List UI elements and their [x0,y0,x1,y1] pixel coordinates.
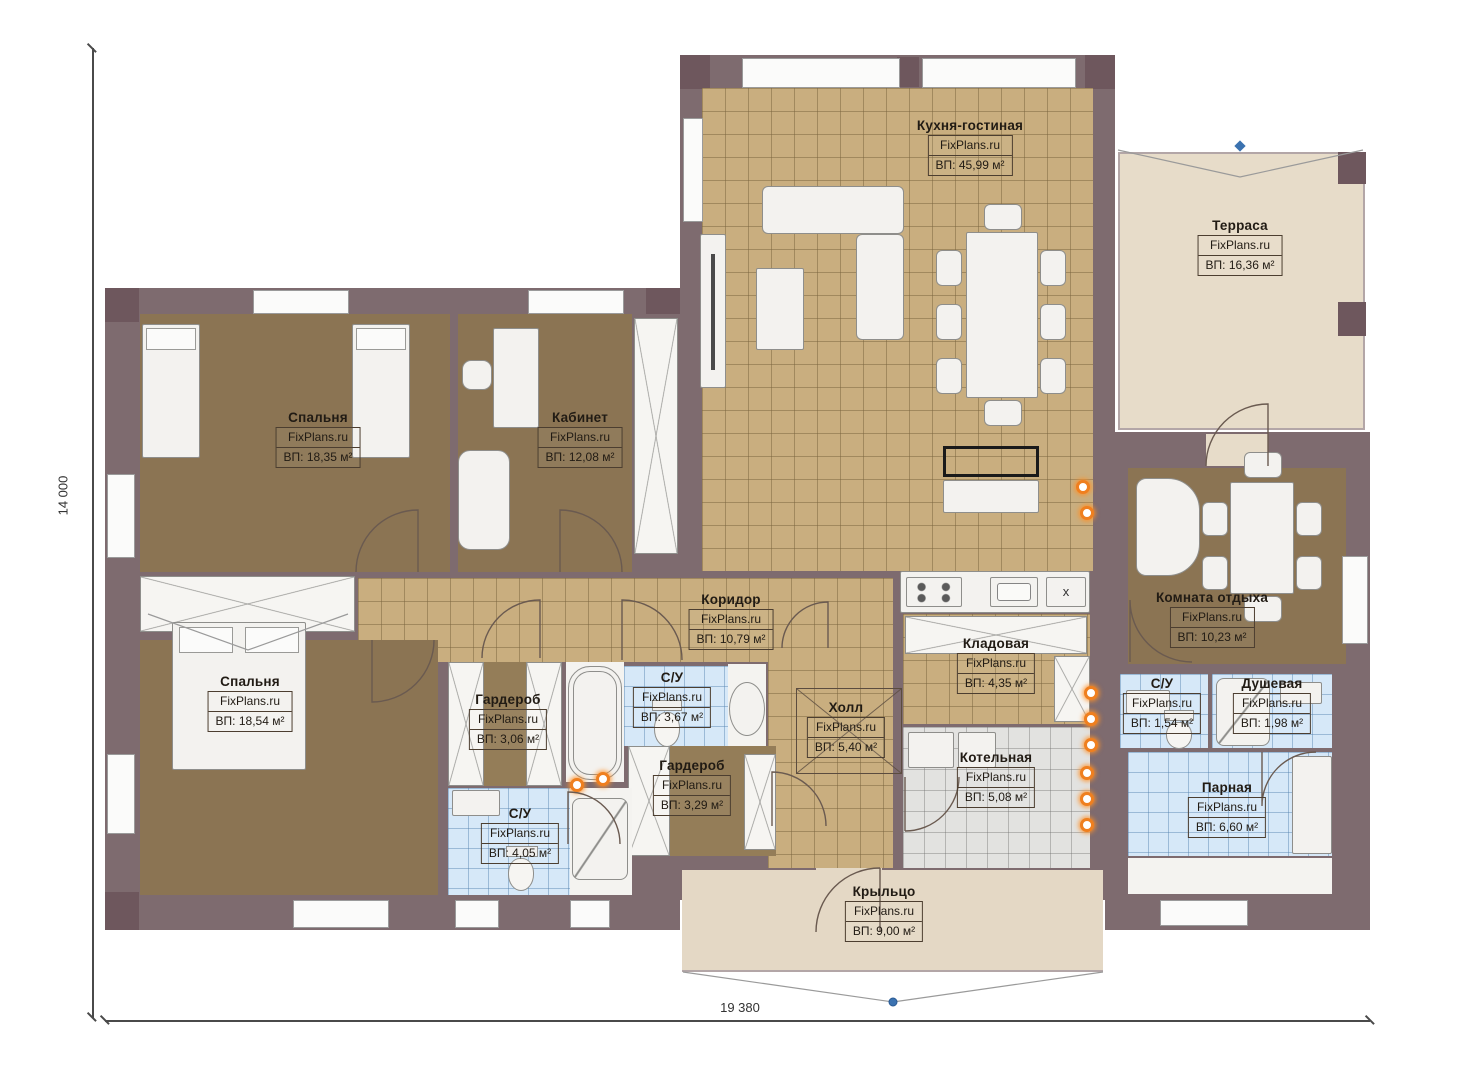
dimension-line-horizontal [105,1020,1370,1022]
room-area: ВП: 6,60 м² [1189,817,1265,837]
terrace-pillar [1338,302,1366,336]
window [742,58,900,88]
floor-plan-canvas: x [0,0,1474,1080]
room-area: ВП: 9,00 м² [846,921,922,941]
room-watermark: FixPlans.ru [470,710,546,729]
room-area: ВП: 10,79 м² [690,629,773,649]
room-title: Коридор [689,592,774,607]
room-area: ВП: 4,35 м² [958,673,1034,693]
chair-icon [1040,358,1066,394]
dimension-label-width: 19 380 [690,1000,790,1015]
room-title: Кухня-гостиная [917,118,1023,133]
office-closet-icon [634,318,678,554]
bed-icon [142,324,200,458]
counter-x-mark: x [1046,577,1086,607]
room-label-lounge: Комната отдыха FixPlans.ru ВП: 10,23 м² [1156,590,1268,648]
window [922,58,1076,88]
room-label-bedroom2: Спальня FixPlans.ru ВП: 18,54 м² [208,674,293,732]
room-watermark: FixPlans.ru [1189,798,1265,817]
chair-icon [1202,556,1228,590]
window [455,900,499,928]
room-label-wardrobe2: Гардероб FixPlans.ru ВП: 3,29 м² [653,758,731,816]
room-title: С/У [1123,676,1201,691]
room-watermark: FixPlans.ru [1171,608,1254,627]
room-area: ВП: 18,35 м² [277,447,360,467]
room-label-terrace: Терраса FixPlans.ru ВП: 16,36 м² [1198,218,1283,276]
kitchen-island-counter-icon [943,480,1039,513]
room-info-box: FixPlans.ru ВП: 3,67 м² [633,687,711,728]
window [107,754,135,834]
room-title: Парная [1188,780,1266,795]
socket-icon [1084,738,1098,752]
wall-pillar [680,55,710,89]
room-info-box: FixPlans.ru ВП: 4,05 м² [481,823,559,864]
chair-icon [936,304,962,340]
socket-icon [1084,686,1098,700]
window [683,118,703,222]
window [1342,556,1368,644]
window [570,900,610,928]
room-label-boiler: Котельная FixPlans.ru ВП: 5,08 м² [957,750,1035,808]
socket-icon [1080,818,1094,832]
room-watermark: FixPlans.ru [1199,236,1282,255]
room-watermark: FixPlans.ru [846,902,922,921]
lounge-table-icon [1230,482,1294,594]
window [293,900,389,928]
dining-table-icon [966,232,1038,398]
room-watermark: FixPlans.ru [1124,694,1200,713]
window [253,290,349,314]
room-info-box: FixPlans.ru ВП: 5,40 м² [807,717,885,758]
room-label-shower: Душевая FixPlans.ru ВП: 1,98 м² [1233,676,1311,734]
pillow [146,328,196,350]
socket-icon [1076,480,1090,494]
room-floor-terrace [1118,152,1365,430]
room-area: ВП: 45,99 м² [929,155,1012,175]
room-label-office: Кабинет FixPlans.ru ВП: 12,08 м² [538,410,623,468]
room-info-box: FixPlans.ru ВП: 3,29 м² [653,775,731,816]
kitchen-island-icon [943,446,1039,477]
sink-icon [729,682,765,736]
pillow [245,627,299,653]
shower-cabin-icon [572,798,628,880]
room-watermark: FixPlans.ru [808,718,884,737]
room-area: ВП: 3,67 м² [634,707,710,727]
room-info-box: FixPlans.ru ВП: 16,36 м² [1198,235,1283,276]
room-label-bath2: С/У FixPlans.ru ВП: 4,05 м² [481,806,559,864]
room-title: Спальня [276,410,361,425]
wall-pillar [1085,55,1115,89]
room-label-kitchen: Кухня-гостиная FixPlans.ru ВП: 45,99 м² [917,118,1023,176]
room-info-box: FixPlans.ru ВП: 18,54 м² [208,691,293,732]
room-area: ВП: 3,29 м² [654,795,730,815]
socket-icon [1080,766,1094,780]
window [1160,900,1248,926]
room-label-corridor: Коридор FixPlans.ru ВП: 10,79 м² [689,592,774,650]
dimension-line-vertical [92,48,94,1018]
room-watermark: FixPlans.ru [634,688,710,707]
dimension-label-height: 14 000 [56,461,71,531]
wall-pillar [105,892,139,930]
room-area: ВП: 3,06 м² [470,729,546,749]
room-watermark: FixPlans.ru [958,654,1034,673]
room-area: ВП: 5,08 м² [958,787,1034,807]
sofa-icon [762,186,904,234]
room-info-box: FixPlans.ru ВП: 18,35 м² [276,427,361,468]
room-label-wardrobe1: Гардероб FixPlans.ru ВП: 3,06 м² [469,692,547,750]
room-label-porch: Крыльцо FixPlans.ru ВП: 9,00 м² [845,884,923,942]
room-title: С/У [633,670,711,685]
room-area: ВП: 5,40 м² [808,737,884,757]
wall-pillar [646,288,680,314]
room-watermark: FixPlans.ru [690,610,773,629]
room-title: Душевая [1233,676,1311,691]
room-title: С/У [481,806,559,821]
room-info-box: FixPlans.ru ВП: 1,98 м² [1233,693,1311,734]
office-chair-icon [462,360,492,390]
chair-icon [1296,556,1322,590]
window [528,290,624,314]
room-watermark: FixPlans.ru [929,136,1012,155]
coffee-table-icon [756,268,804,350]
room-label-bedroom1: Спальня FixPlans.ru ВП: 18,35 м² [276,410,361,468]
room-info-box: FixPlans.ru ВП: 45,99 м² [928,135,1013,176]
chair-icon [1040,250,1066,286]
sauna-bench-icon [1292,756,1332,854]
room-title: Терраса [1198,218,1283,233]
room-info-box: FixPlans.ru ВП: 4,35 м² [957,653,1035,694]
socket-icon [1080,792,1094,806]
room-info-box: FixPlans.ru ВП: 10,23 м² [1170,607,1255,648]
tv-screen-icon [711,254,715,370]
room-info-box: FixPlans.ru ВП: 9,00 м² [845,901,923,942]
room-info-box: FixPlans.ru ВП: 3,06 м² [469,709,547,750]
pillow [179,627,233,653]
steam-margin [1128,858,1332,894]
socket-icon [596,772,610,786]
room-title: Гардероб [469,692,547,707]
desk-icon [493,328,539,428]
room-info-box: FixPlans.ru ВП: 12,08 м² [538,427,623,468]
room-area: ВП: 4,05 м² [482,843,558,863]
room-label-pantry: Кладовая FixPlans.ru ВП: 4,35 м² [957,636,1035,694]
room-area: ВП: 16,36 м² [1199,255,1282,275]
bathtub-icon [568,666,622,780]
room-info-box: FixPlans.ru ВП: 5,08 м² [957,767,1035,808]
room-watermark: FixPlans.ru [482,824,558,843]
room-title: Кабинет [538,410,623,425]
room-watermark: FixPlans.ru [277,428,360,447]
room-label-hall: Холл FixPlans.ru ВП: 5,40 м² [807,700,885,758]
room-label-bath3: С/У FixPlans.ru ВП: 1,54 м² [1123,676,1201,734]
chair-icon [936,358,962,394]
room-watermark: FixPlans.ru [209,692,292,711]
bed-icon [352,324,410,458]
room-watermark: FixPlans.ru [958,768,1034,787]
room-title: Комната отдыха [1156,590,1268,605]
room-area: ВП: 1,98 м² [1234,713,1310,733]
pillow [356,328,406,350]
chair-icon [1244,452,1282,478]
room-title: Котельная [957,750,1035,765]
room-label-steam: Парная FixPlans.ru ВП: 6,60 м² [1188,780,1266,838]
room-label-bath1: С/У FixPlans.ru ВП: 3,67 м² [633,670,711,728]
chair-icon [936,250,962,286]
stove-icon [906,577,962,607]
room-area: ВП: 12,08 м² [539,447,622,467]
chair-icon [1040,304,1066,340]
room-info-box: FixPlans.ru ВП: 6,60 м² [1188,797,1266,838]
chair-icon [1202,502,1228,536]
kitchen-sink-icon [990,577,1038,607]
wardrobe-unit-icon [744,754,776,850]
boiler-appliance-icon [908,732,954,768]
counter-x-label: x [1063,584,1070,599]
room-area: ВП: 10,23 м² [1171,627,1254,647]
socket-icon [570,778,584,792]
terrace-pillar [1338,152,1366,184]
wall-pillar [897,57,919,87]
room-info-box: FixPlans.ru ВП: 10,79 м² [689,609,774,650]
room-area: ВП: 18,54 м² [209,711,292,731]
socket-icon [1084,712,1098,726]
wall-pillar [105,288,139,322]
window [107,474,135,558]
office-sofa-icon [458,450,510,550]
socket-icon [1080,506,1094,520]
sofa-icon [856,234,904,340]
room-info-box: FixPlans.ru ВП: 1,54 м² [1123,693,1201,734]
room-watermark: FixPlans.ru [654,776,730,795]
room-area: ВП: 1,54 м² [1124,713,1200,733]
chair-icon [984,204,1022,230]
room-title: Кладовая [957,636,1035,651]
room-title: Гардероб [653,758,731,773]
room-title: Холл [807,700,885,715]
lounge-sofa-icon [1136,478,1200,576]
room-watermark: FixPlans.ru [1234,694,1310,713]
room-title: Спальня [208,674,293,689]
room-title: Крыльцо [845,884,923,899]
sink-basin [997,583,1031,601]
chair-icon [1296,502,1322,536]
room-watermark: FixPlans.ru [539,428,622,447]
chair-icon [984,400,1022,426]
